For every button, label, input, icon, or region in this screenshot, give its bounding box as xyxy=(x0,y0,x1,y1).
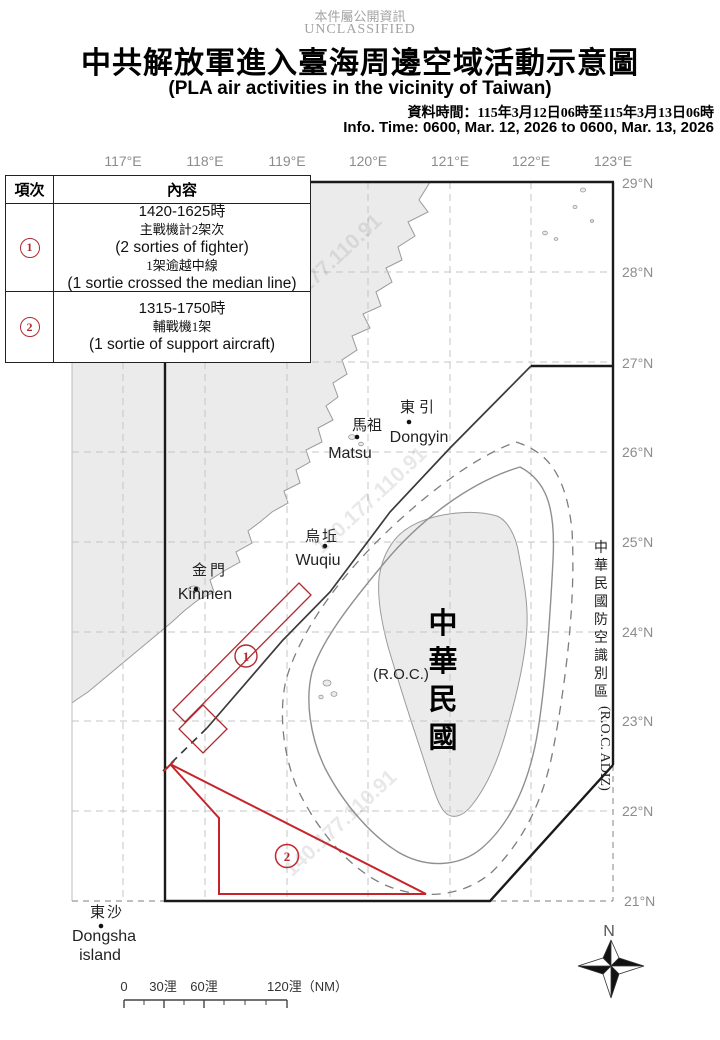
lon-label: 121°E xyxy=(431,153,469,169)
activity-zone-1 xyxy=(173,583,311,753)
lon-label: 118°E xyxy=(186,153,223,169)
adiz-char: 防 xyxy=(594,612,608,628)
info-time-en: Info. Time: 0600, Mar. 12, 2026 to 0600,… xyxy=(343,119,714,136)
lat-label: 24°N xyxy=(622,624,653,640)
roc-char: 國 xyxy=(428,722,457,754)
adiz-char: 國 xyxy=(594,595,608,610)
lat-label: 22°N xyxy=(622,803,653,819)
row-1-en2: (1 sortie crossed the median line) xyxy=(67,274,296,293)
row-1-zh2: 1架逾越中線 xyxy=(146,257,218,274)
adiz-char: 區 xyxy=(594,685,608,700)
row-1-marker: 1 xyxy=(20,238,40,258)
lon-label: 119°E xyxy=(268,153,305,169)
lat-label: 21°N xyxy=(624,893,655,909)
dongsha-zh: 東沙 xyxy=(90,904,124,921)
col-header-content: 內容 xyxy=(54,176,310,203)
kinmen-zh: 金門 xyxy=(192,562,228,579)
lat-label: 28°N xyxy=(622,264,653,280)
roc-en: (R.O.C.) xyxy=(373,666,429,683)
adiz-char: 識 xyxy=(594,648,608,664)
col-header-item: 項次 xyxy=(6,176,54,203)
roc-char: 華 xyxy=(428,645,457,678)
dongsha-en: Dongsha xyxy=(72,928,136,945)
matsu-zh: 馬祖 xyxy=(352,417,382,434)
lat-label: 25°N xyxy=(622,534,653,550)
adiz-label: 中 華 民 國 防 空 識 別 區 (R.O.C. ADIZ) xyxy=(594,540,612,791)
matsu-en: Matsu xyxy=(328,445,372,462)
lon-label: 117°E xyxy=(104,153,141,169)
adiz-char: 空 xyxy=(594,630,608,646)
pla-activity-report: 1 2 117°E 118°E 119°E 120°E 121°E 122°E … xyxy=(0,0,720,1040)
adiz-char: 別 xyxy=(594,666,608,682)
activity-table: 項次 內容 1 1420-1625時 主戰機計2架次 (2 sorties of… xyxy=(5,175,311,363)
lat-label: 29°N xyxy=(622,175,653,191)
dongsha-en2: island xyxy=(79,947,121,964)
activity-table-header: 項次 內容 xyxy=(6,176,310,204)
scale-0: 0 xyxy=(120,979,127,994)
dongyin-en: Dongyin xyxy=(390,429,449,446)
report-title-en: (PLA air activities in the vicinity of T… xyxy=(0,78,720,100)
row-1-en: (2 sorties of fighter) xyxy=(115,238,249,257)
roc-char: 中 xyxy=(428,607,457,640)
lat-label: 26°N xyxy=(622,444,653,460)
row-2-en: (1 sortie of support aircraft) xyxy=(89,335,275,354)
lon-label: 123°E xyxy=(594,153,632,169)
adiz-char: 華 xyxy=(594,558,608,574)
kinmen-en: Kinmen xyxy=(178,586,232,603)
row-1-time: 1420-1625時 xyxy=(139,203,226,221)
lon-label: 122°E xyxy=(512,153,550,169)
adiz-char: 中 xyxy=(594,540,608,556)
lon-label: 120°E xyxy=(349,153,387,169)
row-2-time: 1315-1750時 xyxy=(139,300,226,318)
table-row: 2 1315-1750時 輔戰機1架 (1 sortie of support … xyxy=(6,292,310,362)
compass-n-label: N xyxy=(603,923,615,940)
adiz-en: (R.O.C. ADIZ) xyxy=(597,706,612,791)
wuqiu-en: Wuqiu xyxy=(295,552,340,569)
lat-label: 27°N xyxy=(622,355,653,371)
adiz-char: 民 xyxy=(594,577,608,592)
report-title-zh: 中共解放軍進入臺海周邊空域活動示意圖 xyxy=(0,38,720,82)
compass-rose: N xyxy=(578,923,644,998)
scale-bar xyxy=(124,1000,287,1008)
scale-120: 120浬（NM） xyxy=(267,979,348,994)
longitude-labels: 117°E 118°E 119°E 120°E 121°E 122°E 123°… xyxy=(104,153,632,169)
scale-bar-labels: 0 30浬 60浬 120浬（NM） xyxy=(120,979,348,994)
zone-1-digit: 1 xyxy=(243,649,250,664)
dongyin-zh: 東引 xyxy=(400,399,438,416)
taiwan-strait-map: 1 2 117°E 118°E 119°E 120°E 121°E 122°E … xyxy=(0,0,720,1040)
classification-en: UNCLASSIFIED xyxy=(0,22,720,38)
lat-label: 23°N xyxy=(622,713,653,729)
watermark-text: 140.177.110.91 xyxy=(280,765,402,881)
row-1-zh: 主戰機計2架次 xyxy=(140,221,225,238)
latitude-labels: 29°N 28°N 27°N 26°N 25°N 24°N 23°N 22°N … xyxy=(622,175,655,909)
roc-char: 民 xyxy=(428,684,457,716)
scale-30: 30浬 xyxy=(149,979,176,994)
table-row: 1 1420-1625時 主戰機計2架次 (2 sorties of fight… xyxy=(6,204,310,292)
row-2-marker: 2 xyxy=(20,317,40,337)
activity-zone-1-label: 1 xyxy=(235,645,257,667)
scale-60: 60浬 xyxy=(190,979,217,994)
row-2-zh: 輔戰機1架 xyxy=(153,318,212,335)
